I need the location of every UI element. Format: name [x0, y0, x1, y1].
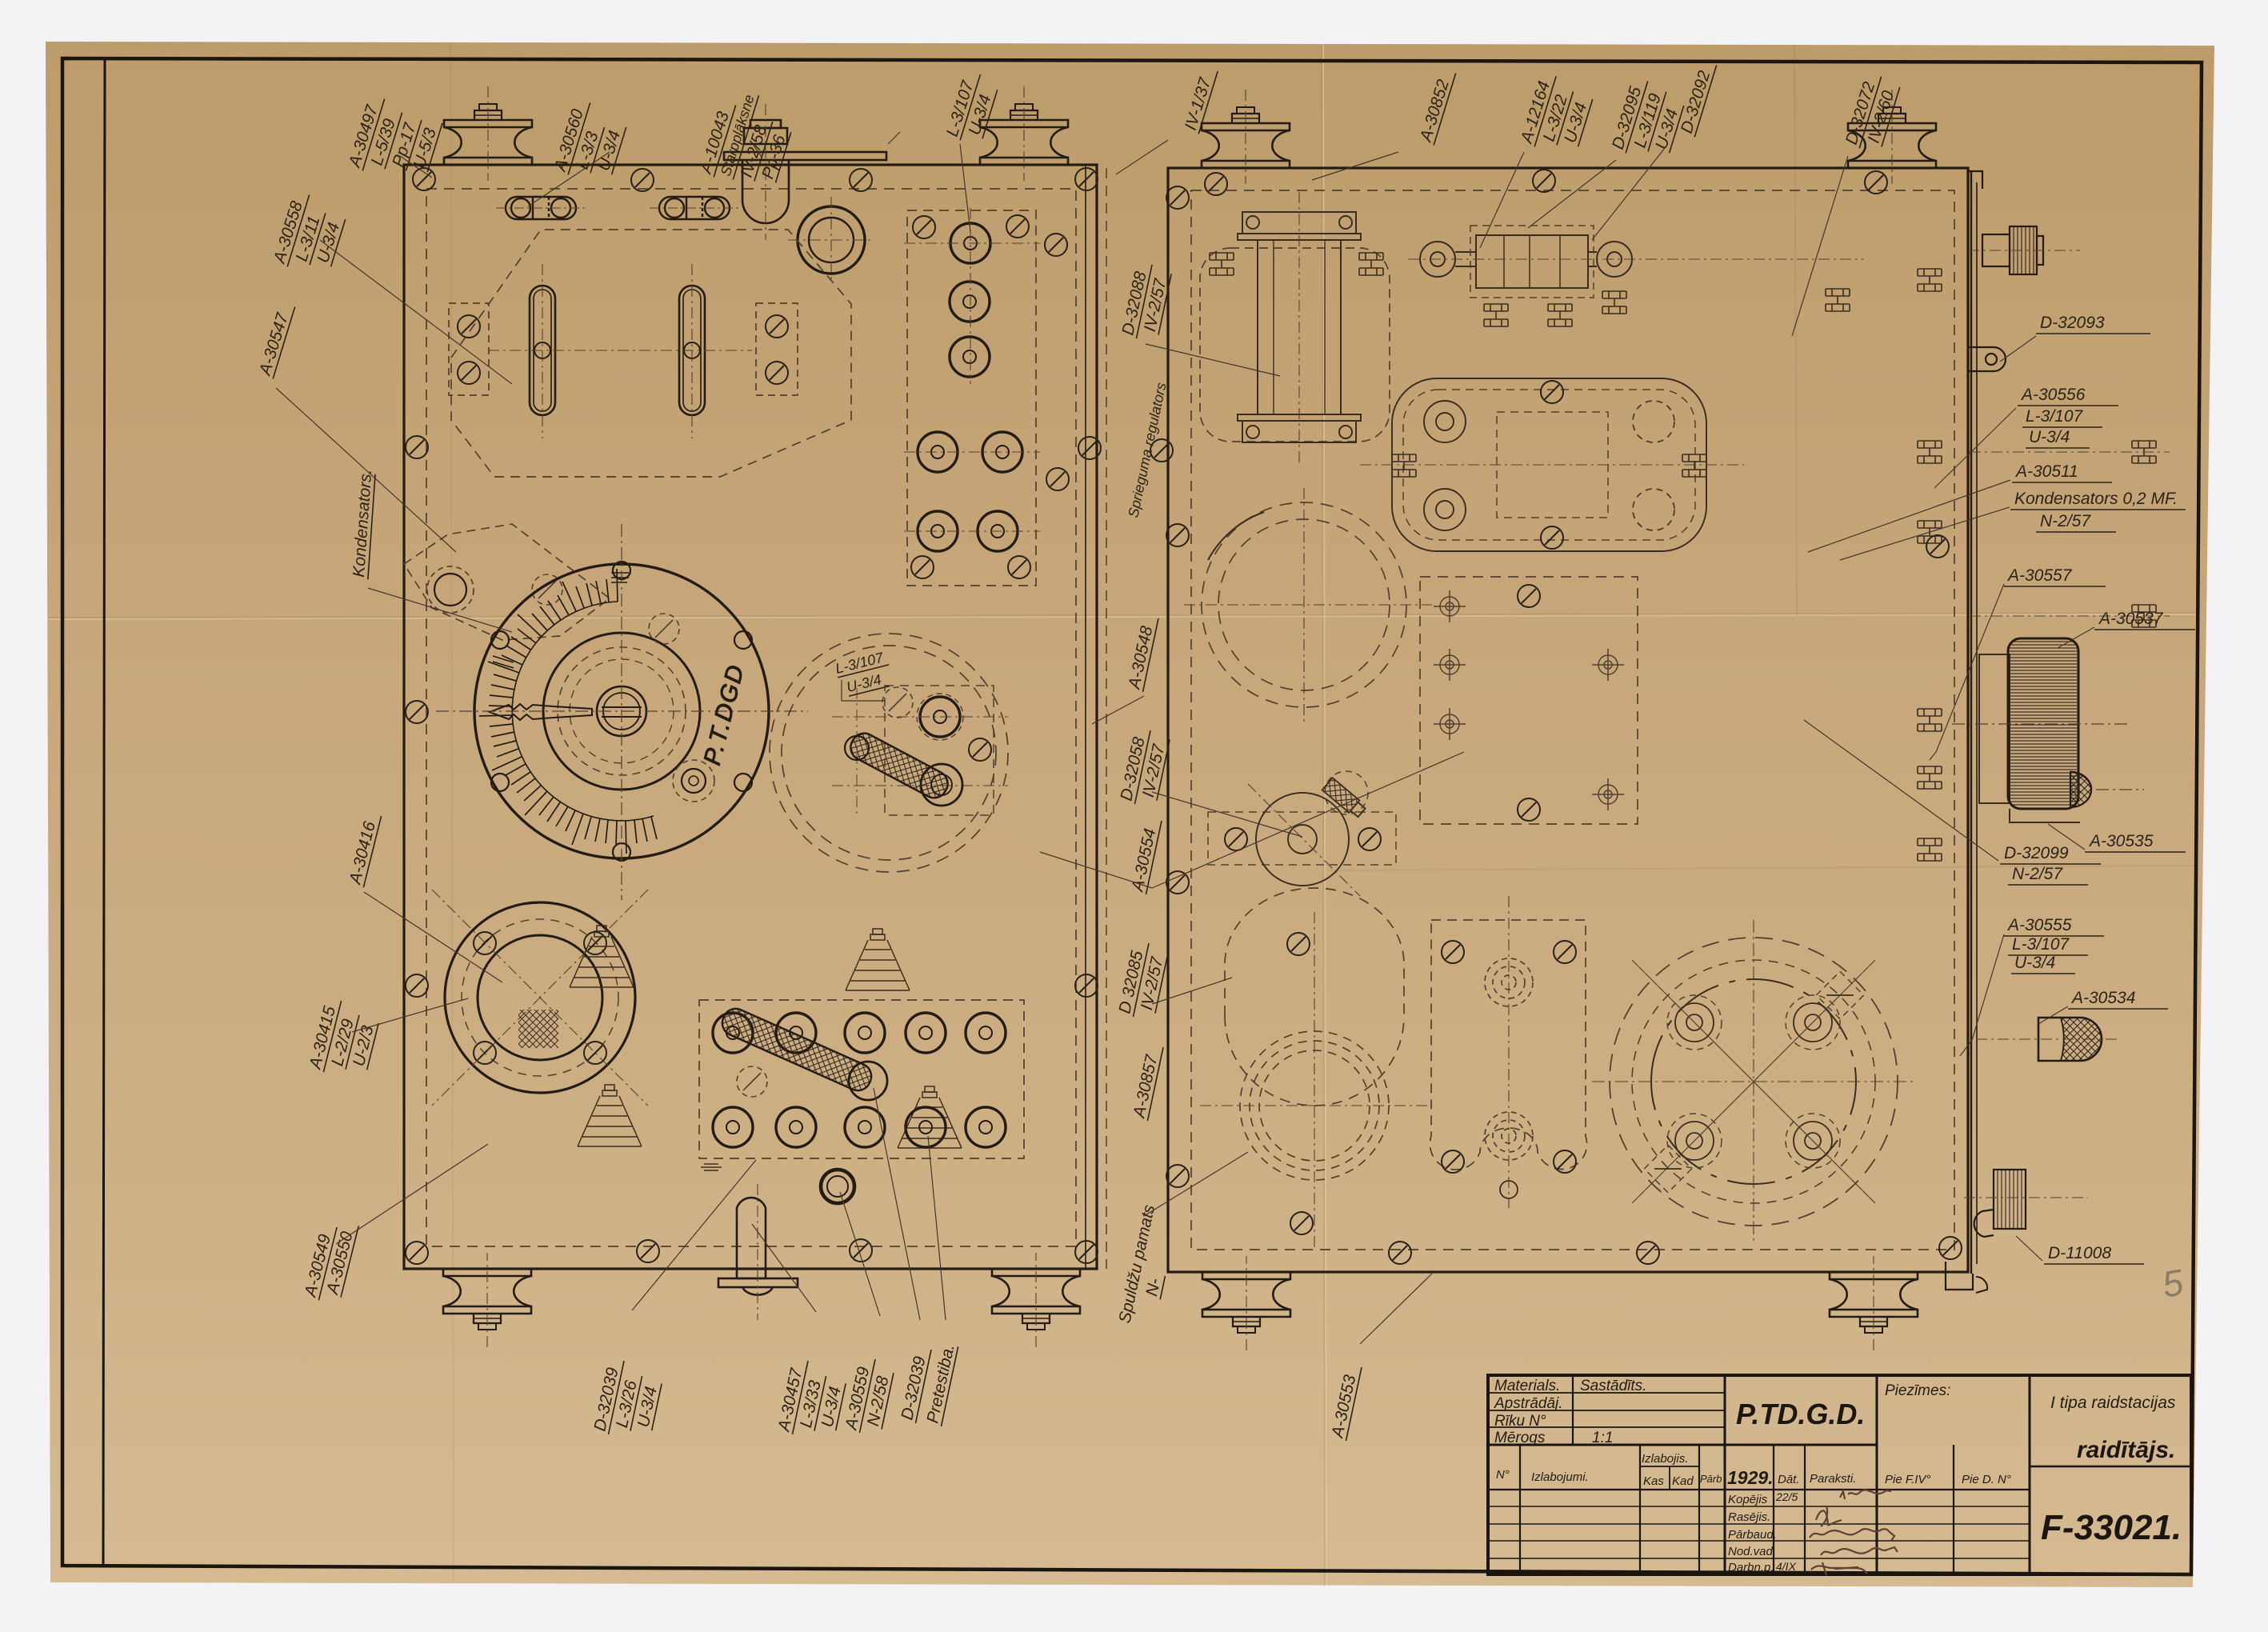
svg-text:1929.: 1929.: [1727, 1467, 1774, 1488]
svg-text:Rasējis.: Rasējis.: [1728, 1510, 1770, 1524]
svg-text:4/IX: 4/IX: [1776, 1560, 1797, 1573]
svg-text:U-3/4: U-3/4: [2029, 428, 2070, 446]
svg-text:A-30534: A-30534: [2070, 989, 2135, 1007]
svg-text:D-32093: D-32093: [2040, 314, 2105, 332]
svg-text:Pie F.IV°: Pie F.IV°: [1885, 1473, 1930, 1486]
svg-text:D-32099: D-32099: [2004, 844, 2069, 862]
svg-text:N-2/57: N-2/57: [2040, 512, 2091, 530]
svg-text:Kas: Kas: [1643, 1474, 1664, 1488]
svg-text:N°: N°: [1496, 1468, 1510, 1482]
svg-text:Mērogs: Mērogs: [1494, 1430, 1546, 1446]
svg-text:A-30535: A-30535: [2088, 832, 2154, 850]
svg-text:D-11008: D-11008: [2048, 1244, 2111, 1262]
svg-text:N-2/57: N-2/57: [2012, 865, 2063, 883]
svg-text:A-30511: A-30511: [2014, 462, 2078, 481]
svg-text:Kopējis: Kopējis: [1728, 1493, 1768, 1506]
svg-text:U-3/4: U-3/4: [2014, 954, 2055, 972]
svg-text:Kondensators 0,2 MF.: Kondensators 0,2 MF.: [2014, 490, 2178, 508]
svg-text:Izlabojumi.: Izlabojumi.: [1531, 1470, 1589, 1484]
svg-text:L-3/107: L-3/107: [2026, 407, 2084, 426]
svg-text:1:1: 1:1: [1592, 1430, 1613, 1446]
svg-text:Rīku N°: Rīku N°: [1494, 1413, 1546, 1430]
svg-text:Kad: Kad: [1672, 1474, 1694, 1488]
svg-text:A-30555: A-30555: [2006, 916, 2072, 934]
svg-text:Piezīmes:: Piezīmes:: [1885, 1382, 1950, 1399]
svg-text:Sastādīts.: Sastādīts.: [1580, 1378, 1646, 1394]
svg-text:Dāt.: Dāt.: [1778, 1473, 1800, 1486]
svg-text:Pārb: Pārb: [1700, 1473, 1722, 1485]
svg-text:Pārbaud.: Pārbaud.: [1728, 1528, 1777, 1542]
svg-text:Nod.vad.: Nod.vad.: [1728, 1545, 1776, 1558]
svg-text:Pie D. N°: Pie D. N°: [1962, 1473, 2011, 1486]
svg-text:Darbn.p.: Darbn.p.: [1728, 1561, 1774, 1574]
svg-text:F-33021.: F-33021.: [2041, 1508, 2182, 1547]
svg-text:A-30556: A-30556: [2020, 386, 2086, 404]
svg-text:Apstrādāj.: Apstrādāj.: [1494, 1395, 1563, 1412]
svg-text:raidītājs.: raidītājs.: [2077, 1437, 2175, 1463]
svg-text:L-3/107: L-3/107: [2012, 935, 2070, 954]
svg-text:22/5: 22/5: [1775, 1490, 1798, 1503]
svg-text:P.TD.G.D.: P.TD.G.D.: [1736, 1398, 1865, 1430]
svg-text:I tipa raidstacijas: I tipa raidstacijas: [2050, 1394, 2176, 1412]
svg-text:A-30537: A-30537: [2098, 610, 2164, 628]
svg-text:Materials.: Materials.: [1494, 1378, 1560, 1394]
svg-text:Izlabojis.: Izlabojis.: [1642, 1452, 1688, 1466]
svg-text:A-30557: A-30557: [2006, 566, 2073, 585]
svg-text:Paraksti.: Paraksti.: [1810, 1472, 1856, 1486]
